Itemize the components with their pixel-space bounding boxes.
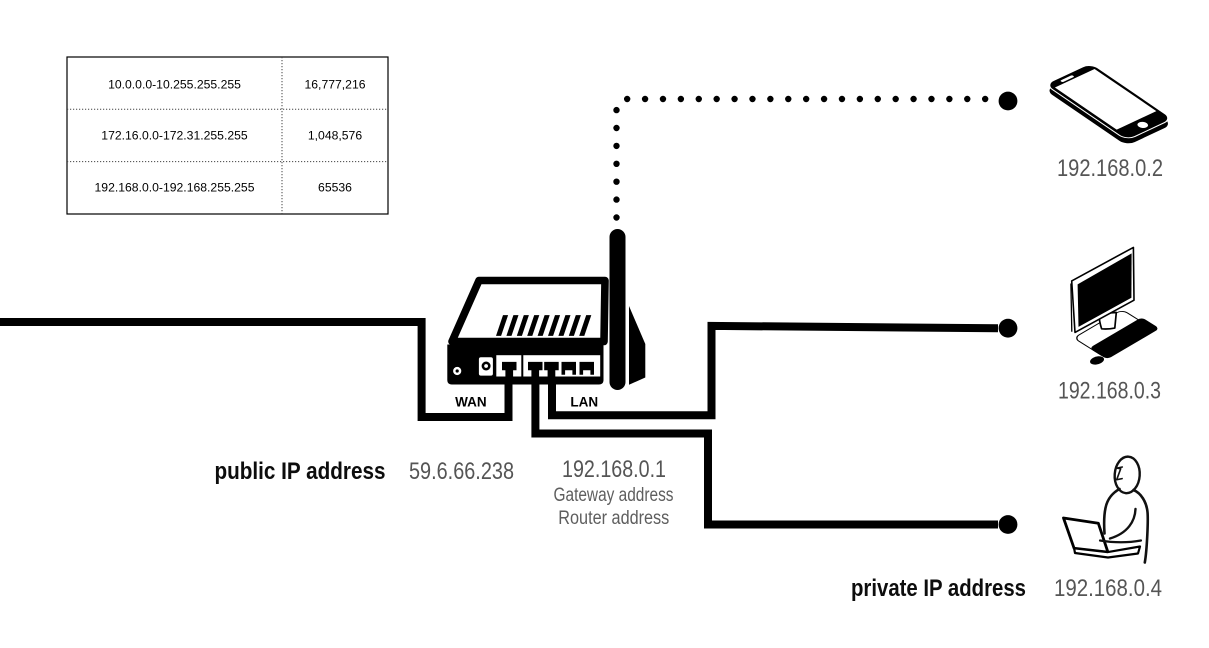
svg-text:172.16.0.0-172.31.255.255: 172.16.0.0-172.31.255.255: [101, 129, 248, 143]
svg-text:Gateway address: Gateway address: [554, 485, 674, 506]
svg-text:65536: 65536: [318, 180, 352, 194]
svg-text:192.168.0.0-192.168.255.255: 192.168.0.0-192.168.255.255: [95, 180, 255, 194]
svg-text:10.0.0.0-10.255.255.255: 10.0.0.0-10.255.255.255: [108, 77, 241, 91]
svg-text:59.6.66.238: 59.6.66.238: [409, 458, 514, 485]
svg-text:192.168.0.2: 192.168.0.2: [1057, 155, 1163, 182]
svg-text:192.168.0.4: 192.168.0.4: [1054, 575, 1162, 602]
svg-text:WAN: WAN: [455, 394, 487, 409]
svg-text:private IP address: private IP address: [851, 575, 1026, 602]
svg-text:192.168.0.1: 192.168.0.1: [562, 456, 666, 483]
svg-text:1,048,576: 1,048,576: [308, 129, 362, 143]
svg-text:public IP address: public IP address: [215, 458, 386, 485]
svg-text:Router address: Router address: [558, 508, 669, 529]
svg-text:192.168.0.3: 192.168.0.3: [1058, 378, 1161, 405]
svg-text:16,777,216: 16,777,216: [305, 77, 366, 91]
svg-text:LAN: LAN: [570, 394, 598, 409]
